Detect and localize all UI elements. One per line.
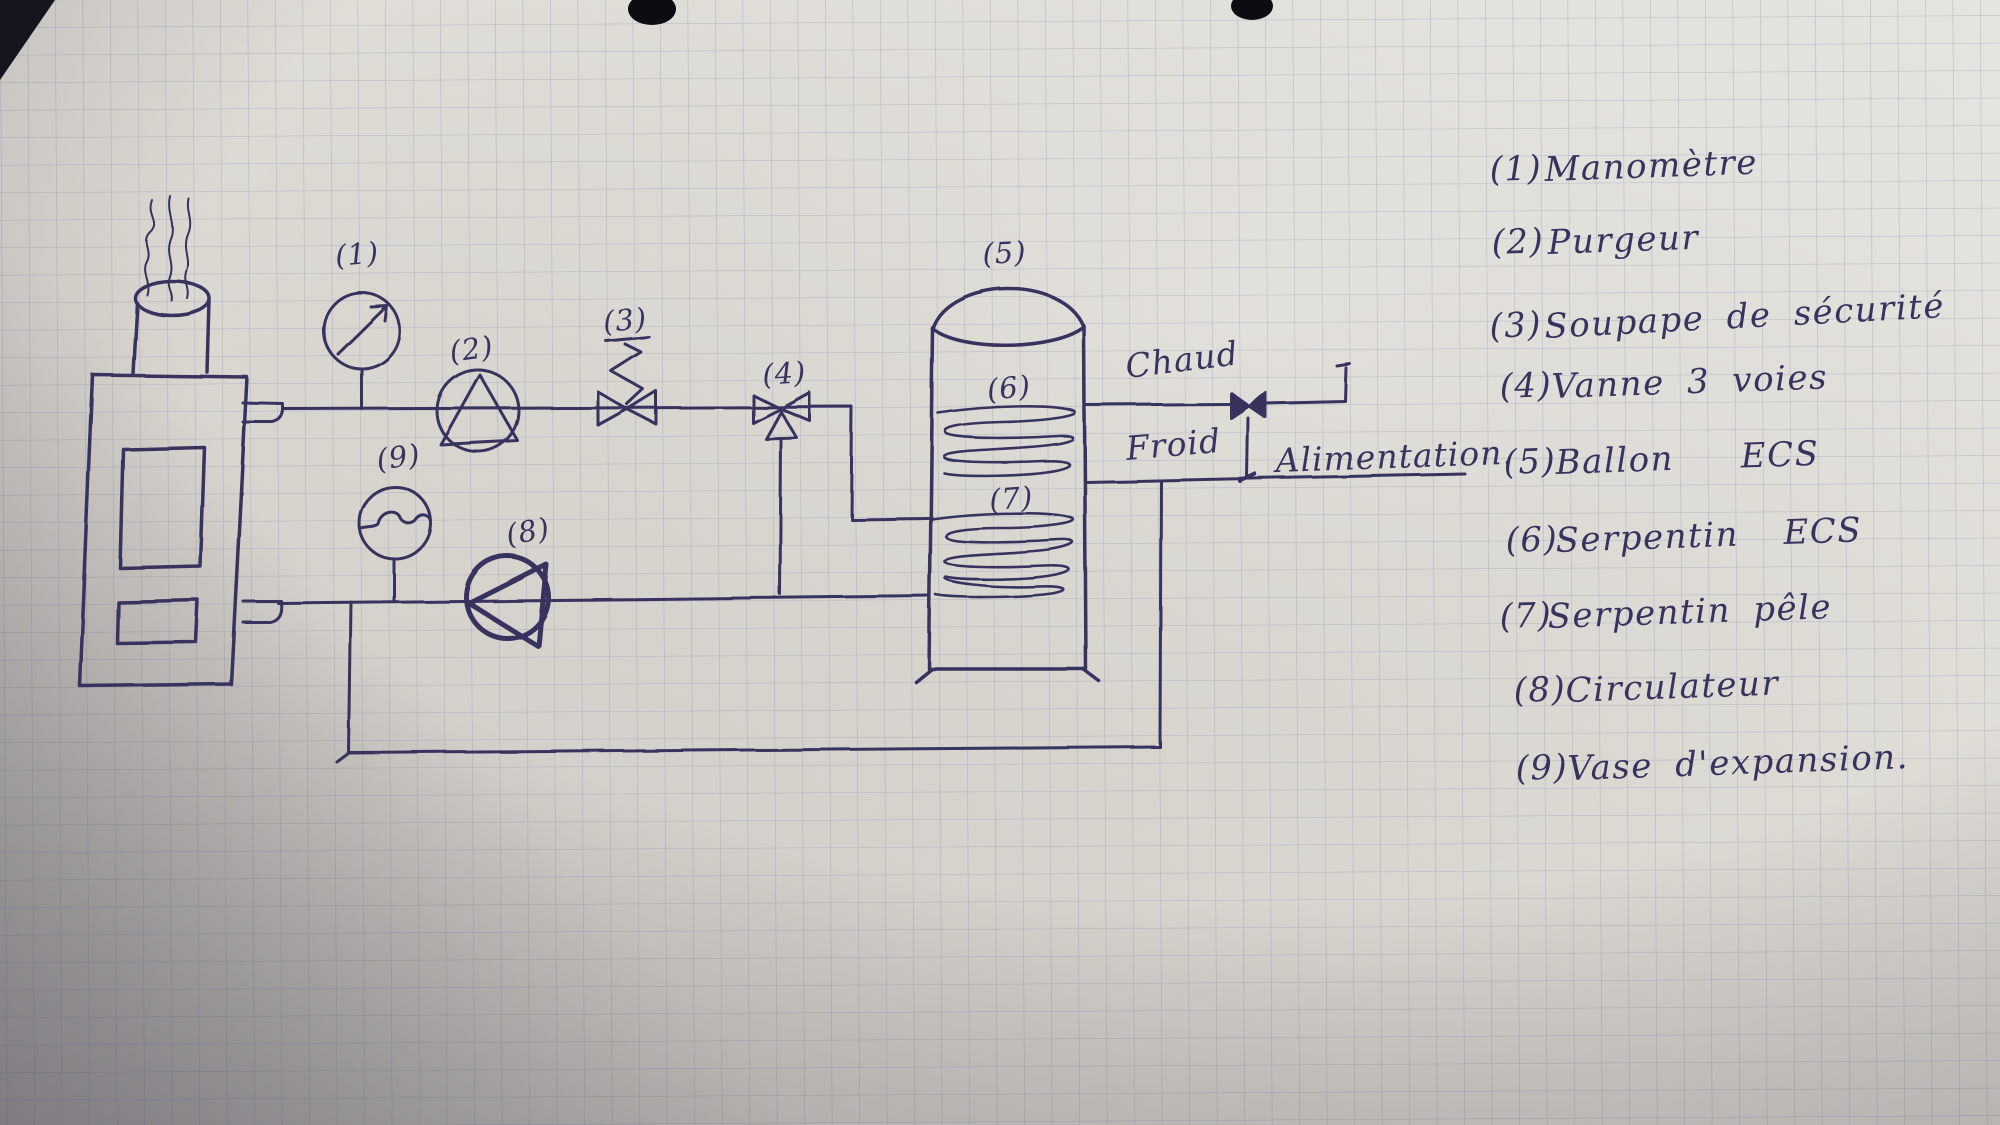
label-froid: Froid	[1123, 421, 1222, 468]
loop-riser	[1160, 481, 1161, 747]
legend-num-1: (1)	[1489, 148, 1543, 190]
legend-num-7: (7)	[1499, 595, 1553, 637]
corner-shadow	[0, 0, 900, 1125]
tag-2: (2)	[447, 329, 495, 369]
chaud-pipe-left	[1086, 404, 1231, 405]
supply-valve-down-stem	[1247, 418, 1248, 477]
tag-9: (9)	[374, 437, 422, 477]
photo-of-schematic-paper: (1) (2) (3) (4) (5) (6) (7) (8) (9) Chau…	[0, 0, 2000, 1125]
legend-num-8: (8)	[1513, 669, 1567, 711]
legend-label-1: Manomètre	[1543, 143, 1759, 190]
tag-3: (3)	[602, 301, 649, 339]
tag-5: (5)	[982, 235, 1028, 271]
legend-label-2: Purgeur	[1546, 218, 1700, 263]
three-way-valve-branch-pipe	[780, 440, 781, 594]
legend-num-4: (4)	[1499, 365, 1553, 407]
legend-num-3: (3)	[1488, 304, 1543, 347]
tag-7: (7)	[988, 480, 1034, 517]
tag-6: (6)	[985, 369, 1032, 407]
legend-num-9: (9)	[1515, 747, 1569, 789]
legend-label-8: Circulateur	[1565, 664, 1780, 711]
legend-num-5: (5)	[1503, 441, 1557, 483]
tag-1: (1)	[334, 235, 381, 273]
legend-num-2: (2)	[1491, 221, 1545, 263]
loop-down-branch	[349, 602, 351, 753]
tag-4: (4)	[761, 355, 807, 392]
legend-num-6: (6)	[1505, 519, 1559, 561]
